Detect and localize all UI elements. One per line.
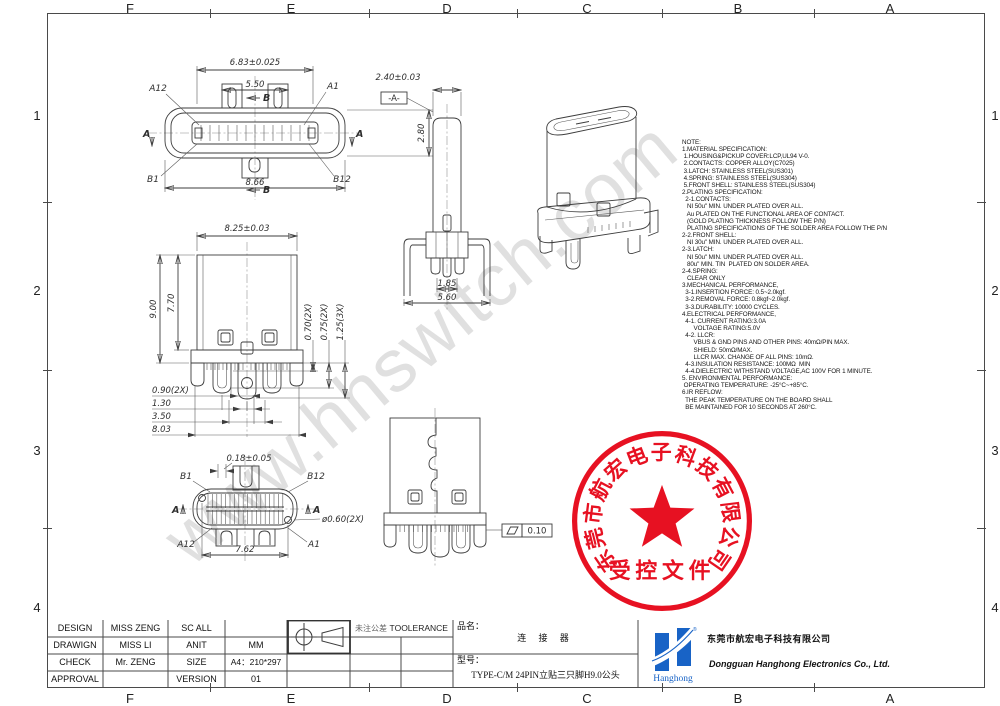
view-rear-elevation: 0.10 <box>384 408 552 566</box>
border-tick <box>977 202 986 203</box>
design-label: DESIGN <box>47 620 103 637</box>
approval-label: APPROVAL <box>47 671 103 688</box>
pin-label: B1 <box>180 472 192 482</box>
unit-label: ANIT <box>168 637 225 654</box>
pin-label: B12 <box>333 175 351 185</box>
section-marker: B <box>263 185 270 196</box>
border-tick <box>517 9 518 18</box>
dim-text: 8.03 <box>152 425 171 435</box>
model-number: TYPE-C/M 24PIN立贴三只脚H9.0公头 <box>453 666 638 684</box>
dim-text: 0.75(2X) <box>320 304 330 341</box>
version-value: 01 <box>225 671 287 688</box>
border-tick <box>814 9 815 18</box>
dim-text: 0.18±0.05 <box>227 454 272 464</box>
drawing-name: MISS LI <box>103 637 168 654</box>
view-side: 2.40±0.03 -A- 1.85 5.60 <box>376 73 490 310</box>
part-name: 连 接 器 <box>453 626 638 650</box>
datum-label: -A- <box>388 94 400 104</box>
section-marker: A <box>312 505 320 516</box>
dim-text: 8.25±0.03 <box>225 224 270 234</box>
dim-text: 7.62 <box>236 545 255 555</box>
dim-text: 1.30 <box>152 399 171 409</box>
stamp-star <box>630 485 695 547</box>
border-tick <box>977 370 986 371</box>
title-block: DESIGN MISS ZENG SC ALL DRAWIGN MISS LI … <box>47 620 983 688</box>
view-bottom: 0.18±0.05 B1 B12 A A ø0.60(2X) A12 A1 7.… <box>171 454 364 562</box>
dim-text: 0.70(2X) <box>304 304 314 341</box>
border-tick <box>977 528 986 529</box>
tolerance-header: 未注公差 TOOLERANCE <box>350 620 453 637</box>
check-name: Mr. ZENG <box>103 654 168 671</box>
dim-text: ø0.60(2X) <box>321 515 364 525</box>
pin-label: A12 <box>148 84 167 94</box>
dim-text: 5.60 <box>438 293 457 303</box>
border-tick <box>210 9 211 18</box>
dim-text: 1.85 <box>438 279 457 289</box>
logo-wordmark: Hanghong <box>653 674 693 684</box>
stamp-label: 受控文件 <box>609 558 715 583</box>
company-logo: ® Hanghong <box>648 623 698 685</box>
dim-text: 7.70 <box>167 294 177 313</box>
section-marker: B <box>263 93 270 104</box>
section-marker: A <box>142 129 150 140</box>
tolerance-label-en: TOOLERANCE <box>390 623 448 633</box>
dim-text: 6.83±0.025 <box>230 58 280 68</box>
dim-text: 0.90(2X) <box>152 386 189 396</box>
flatness-value: 0.10 <box>528 527 547 537</box>
size-label: SIZE <box>168 654 225 671</box>
dim-text: 2.80 <box>417 124 427 143</box>
border-tick <box>43 528 52 529</box>
tolerance-label-cn: 未注公差 <box>355 624 387 633</box>
pin-label: A12 <box>176 540 195 550</box>
company-name-en: Dongguan Hanghong Electronics Co., Ltd. <box>709 654 985 674</box>
pin-label: B12 <box>307 472 325 482</box>
technical-drawing: 6.83±0.025 5.50 2.80 8.66 A12 A1 B1 B12 … <box>0 0 1000 706</box>
company-name-cn: 东莞市航宏电子科技有限公司 <box>707 626 983 652</box>
check-label: CHECK <box>47 654 103 671</box>
design-name: MISS ZENG <box>103 620 168 637</box>
drawing-label: DRAWIGN <box>47 637 103 654</box>
border-tick <box>662 9 663 18</box>
controlled-document-stamp: 东莞市航宏电子科技有限公司 受控文件 <box>567 426 757 616</box>
unit-value: MM <box>225 637 287 654</box>
logo-reg-mark: ® <box>693 626 697 633</box>
dim-text: 5.50 <box>246 80 265 90</box>
dim-text: 3.50 <box>152 412 171 422</box>
dim-text: 9.00 <box>149 300 159 319</box>
border-tick <box>369 9 370 18</box>
section-marker: A <box>355 129 363 140</box>
size-value: A4：210*297 <box>225 654 287 671</box>
border-tick <box>43 370 52 371</box>
pin-label: B1 <box>147 175 159 185</box>
version-label: VERSION <box>168 671 225 688</box>
view-front-elevation: 8.25±0.03 9.00 7.70 0.70(2X) 0.75(2X) 1.… <box>149 224 350 437</box>
view-3d-isometric <box>538 107 658 270</box>
pin-label: A1 <box>307 540 320 550</box>
dim-text: 2.40±0.03 <box>376 73 421 83</box>
section-marker: A <box>171 505 179 516</box>
scale-label: SC ALL <box>168 620 225 637</box>
pin-label: A1 <box>326 82 339 92</box>
dim-text: 1.25(3X) <box>336 304 346 341</box>
border-tick <box>43 202 52 203</box>
